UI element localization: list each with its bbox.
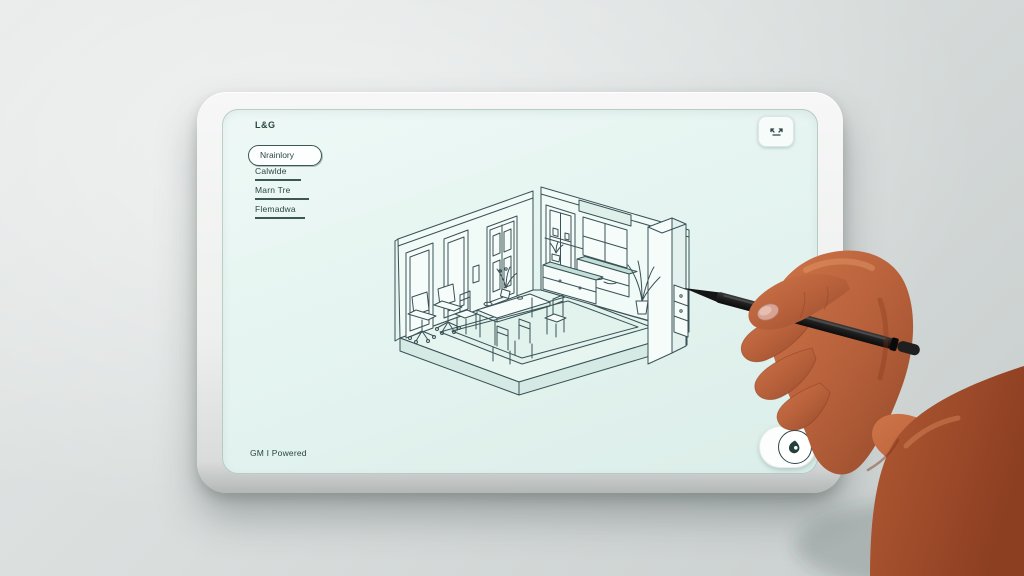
logo-fab-button[interactable] [759, 426, 816, 468]
expand-arrows-icon [769, 125, 784, 138]
logo-ring [778, 430, 812, 464]
sidebar-item-2[interactable]: Calwlde [255, 166, 325, 181]
tablet-screen: L&G Nrainlory Calwlde Marn Tre Flemadwa [222, 109, 818, 474]
thumb [872, 414, 1012, 512]
sidebar-item-underline [255, 198, 309, 200]
brand-logo-text: L&G [255, 120, 276, 130]
ink-drop-icon [786, 438, 804, 456]
tablet-device: L&G Nrainlory Calwlde Marn Tre Flemadwa [197, 92, 843, 493]
hand-shadow [795, 500, 1024, 576]
sidebar-item-active[interactable]: Nrainlory [248, 145, 322, 166]
sidebar-item-4[interactable]: Flemadwa [255, 204, 325, 219]
footer-caption: GM I Powered [250, 448, 307, 458]
drawing-canvas[interactable] [390, 161, 700, 406]
sidebar-item-label: Flemadwa [255, 204, 325, 214]
sidebar-item-label: Calwlde [255, 166, 325, 176]
sidebar-item-underline [255, 217, 305, 219]
forearm [870, 366, 1024, 576]
isometric-room-sketch [390, 161, 700, 406]
expand-button[interactable] [758, 116, 794, 147]
sidebar-item-underline [255, 179, 301, 181]
sidebar-item-3[interactable]: Marn Tre [255, 185, 325, 200]
scene: L&G Nrainlory Calwlde Marn Tre Flemadwa [0, 0, 1024, 576]
sidebar-item-label: Marn Tre [255, 185, 325, 195]
